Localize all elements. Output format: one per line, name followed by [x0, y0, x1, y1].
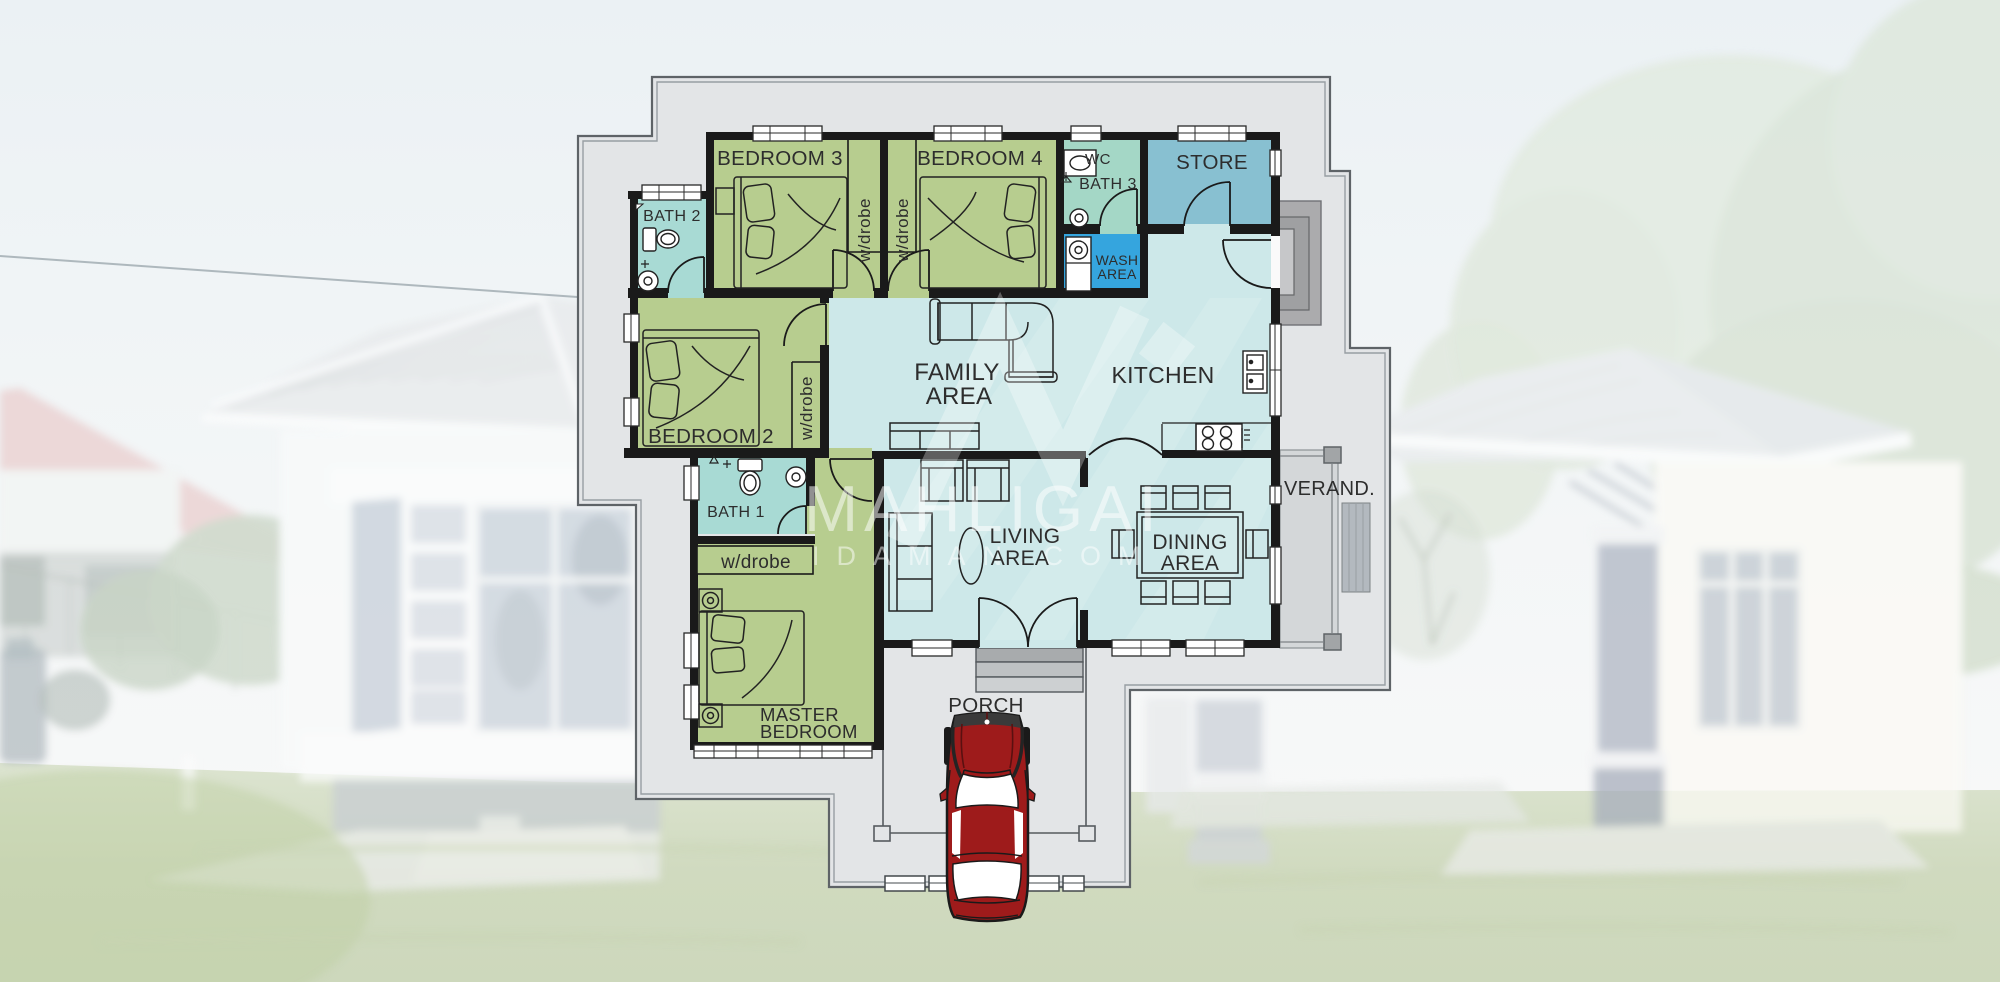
svg-text:BEDROOM: BEDROOM	[760, 721, 858, 742]
svg-text:VERAND.: VERAND.	[1284, 478, 1375, 500]
svg-text:BEDROOM 3: BEDROOM 3	[717, 147, 843, 170]
svg-text:BATH 3: BATH 3	[1079, 176, 1137, 193]
svg-text:BATH 2: BATH 2	[643, 208, 701, 225]
svg-text:w/drobe: w/drobe	[797, 376, 816, 441]
svg-text:FAMILY: FAMILY	[914, 359, 999, 386]
svg-text:BATH 1: BATH 1	[707, 504, 765, 521]
svg-text:BEDROOM 2: BEDROOM 2	[648, 425, 774, 448]
svg-text:IDAMAN.COM: IDAMAN.COM	[812, 541, 1158, 571]
svg-text:DINING: DINING	[1152, 531, 1227, 554]
svg-text:LIVING: LIVING	[990, 525, 1061, 548]
svg-text:AREA: AREA	[991, 547, 1049, 570]
svg-text:STORE: STORE	[1176, 151, 1248, 174]
svg-text:KITCHEN: KITCHEN	[1111, 362, 1214, 388]
svg-text:BEDROOM 4: BEDROOM 4	[917, 147, 1043, 170]
svg-text:MAHLIGAI: MAHLIGAI	[804, 472, 1163, 545]
svg-text:WC: WC	[1085, 151, 1111, 168]
svg-text:w/drobe: w/drobe	[720, 552, 791, 573]
svg-text:AREA: AREA	[1097, 266, 1137, 282]
svg-text:AREA: AREA	[926, 383, 993, 410]
svg-text:w/drobe: w/drobe	[893, 198, 912, 263]
svg-text:AREA: AREA	[1161, 552, 1219, 575]
svg-text:w/drobe: w/drobe	[855, 198, 874, 263]
